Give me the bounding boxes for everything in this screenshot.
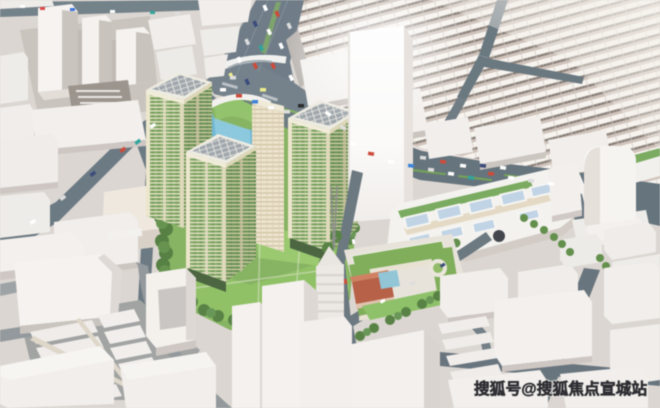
svg-text:搜狐号@搜狐焦点宣城站: 搜狐号@搜狐焦点宣城站 <box>474 379 648 398</box>
